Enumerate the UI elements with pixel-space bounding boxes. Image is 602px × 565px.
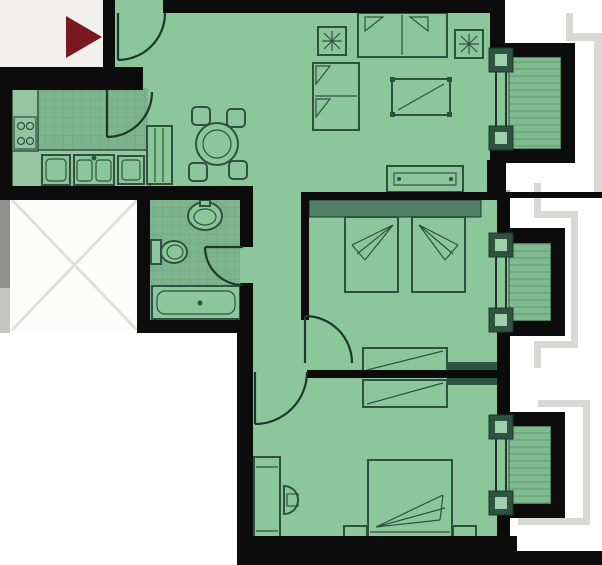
desk	[254, 457, 280, 541]
dining-table	[196, 123, 238, 165]
bathroom-wall-right-lower	[240, 283, 253, 333]
wall	[497, 512, 510, 553]
bathroom-wall-right-upper	[240, 198, 253, 247]
wall	[490, 0, 505, 48]
washbasin-tap	[200, 200, 210, 206]
coffee-table-corner	[390, 112, 395, 117]
wall-left	[0, 67, 12, 200]
bathroom-wall-bottom	[137, 320, 253, 333]
neighbour-outline	[534, 341, 578, 348]
balcony2-wall-right	[551, 228, 565, 336]
post	[489, 308, 513, 332]
bedroom2-wall-bottom	[237, 536, 517, 553]
floor-plan-page: Apartment floor plan	[0, 0, 602, 565]
dining-chair	[229, 161, 247, 179]
interior-wall-between-bedrooms	[307, 370, 510, 378]
coffee-table-corner	[447, 112, 452, 117]
neighbour-outline	[571, 211, 578, 348]
wall	[163, 0, 498, 13]
balcony-3	[509, 426, 551, 504]
bathtub-drain	[198, 301, 203, 306]
left-shaft-wall-dark	[0, 200, 10, 288]
neighbour-outline	[538, 400, 590, 407]
floor-plan-svg: Apartment floor plan	[0, 0, 602, 565]
dining-chair	[192, 107, 210, 125]
coffee-table-corner	[447, 77, 452, 82]
coffee-table-corner	[390, 77, 395, 82]
plant-icon	[459, 34, 479, 54]
bathroom-wall-left	[137, 198, 150, 333]
balcony1-wall-right	[561, 43, 575, 163]
tv-console-knob	[397, 177, 401, 181]
post	[489, 126, 513, 150]
dining-chair	[227, 109, 245, 127]
neighbour-outline	[534, 348, 541, 368]
single-bed-right	[412, 217, 465, 292]
post	[489, 491, 513, 515]
toilet-tank	[151, 240, 161, 264]
post	[489, 48, 513, 72]
sink-tap	[92, 156, 97, 161]
plant-icon	[322, 31, 342, 51]
neighbour-outline	[583, 400, 590, 525]
kitchen-wall-top	[0, 67, 143, 90]
post	[489, 233, 513, 257]
balcony-2	[509, 243, 551, 321]
bedroom2-wall-left	[237, 333, 253, 551]
headboard-shelf	[309, 200, 481, 217]
section-line	[455, 192, 602, 198]
post	[489, 415, 513, 439]
tv-console-knob	[449, 177, 453, 181]
bedroom1-wall-left	[301, 198, 309, 320]
neighbour-outline	[518, 518, 590, 525]
neighbour-outline	[594, 41, 602, 196]
dining-chair	[189, 163, 207, 181]
left-shaft-wall-light	[0, 288, 10, 333]
wall	[0, 186, 253, 200]
building-base-line	[237, 551, 602, 565]
balcony-1	[509, 57, 561, 149]
shoe-cabinet	[147, 126, 172, 184]
neighbour-outline	[566, 33, 602, 41]
balcony3-wall-right	[551, 412, 565, 518]
